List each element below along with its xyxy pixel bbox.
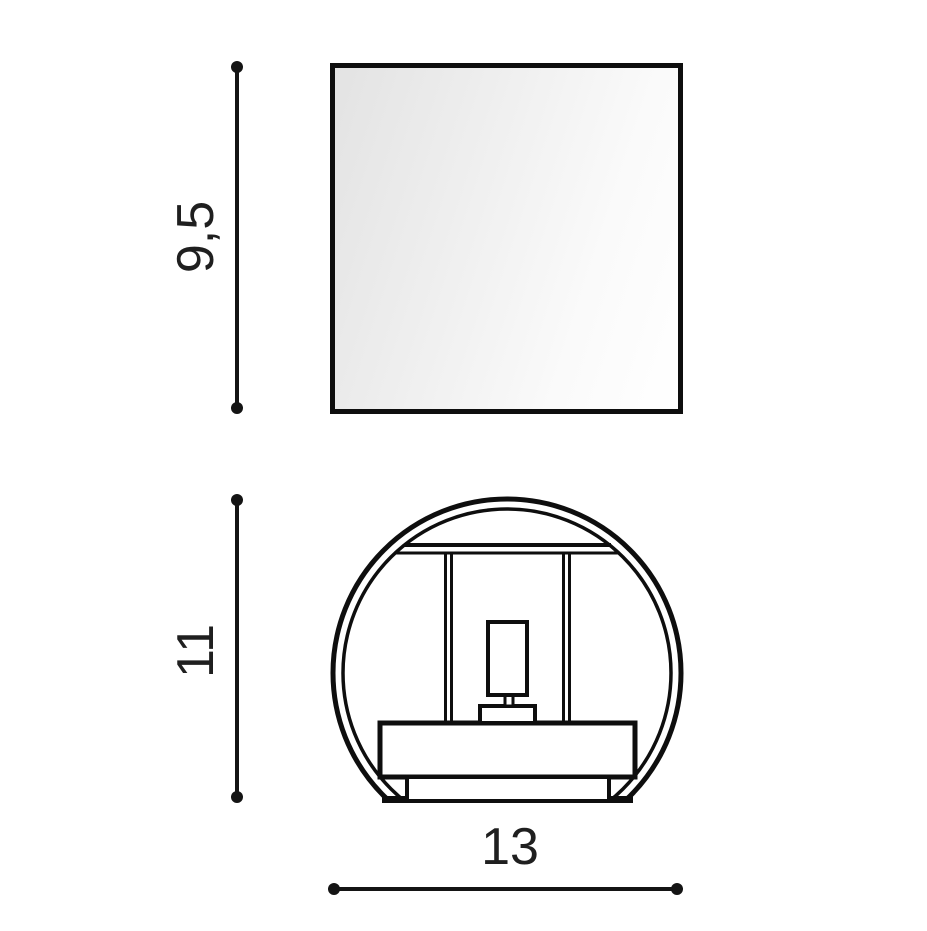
lamp-socket — [480, 706, 535, 723]
dimension-line — [235, 500, 239, 797]
dimension-label: 9,5 — [170, 201, 222, 273]
square-body — [330, 63, 683, 414]
mounting-plate — [407, 777, 609, 801]
left-support-post — [446, 554, 452, 724]
dimension-endpoint-dot — [231, 791, 243, 803]
dimension-endpoint-dot — [231, 494, 243, 506]
dimension-line — [235, 67, 239, 408]
dimension-endpoint-dot — [231, 61, 243, 73]
dimension-endpoint-dot — [328, 883, 340, 895]
right-support-post — [564, 554, 570, 724]
dimension-label: 13 — [481, 821, 539, 873]
dimension-drawing: 9,5 — [0, 0, 927, 931]
dimension-label: 11 — [170, 624, 222, 678]
dimension-line — [334, 887, 678, 891]
dimension-endpoint-dot — [231, 402, 243, 414]
base-plate — [380, 723, 635, 777]
lamp-bulb — [488, 622, 527, 695]
round-fixture-drawing — [320, 488, 700, 813]
dimension-endpoint-dot — [671, 883, 683, 895]
